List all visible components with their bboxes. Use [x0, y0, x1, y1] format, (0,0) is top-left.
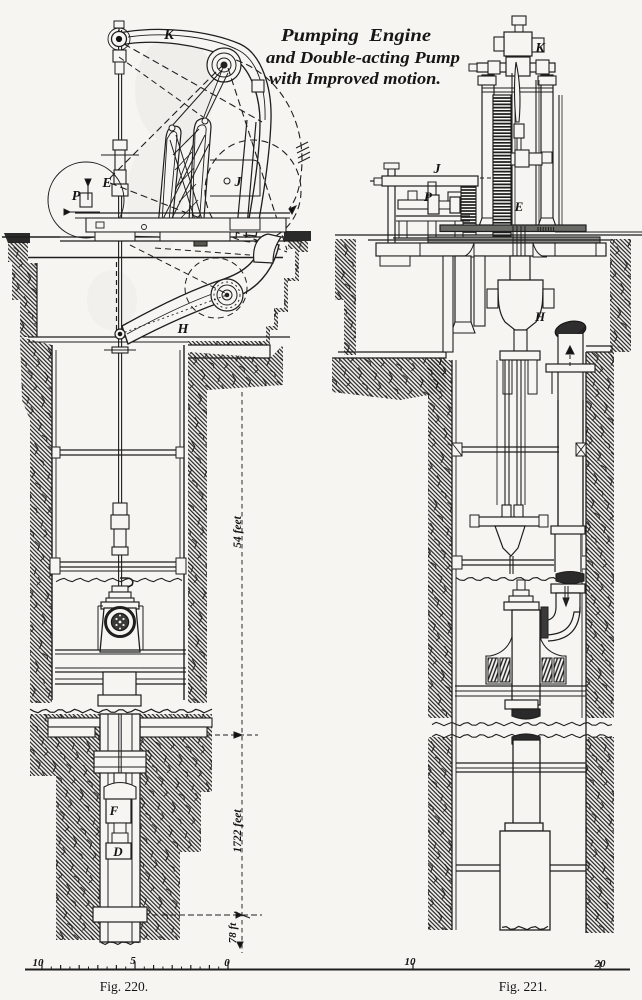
- svg-text:J: J: [433, 162, 442, 177]
- svg-text:P: P: [72, 189, 81, 204]
- svg-text:F: F: [109, 803, 119, 818]
- svg-text:0: 0: [224, 957, 230, 969]
- svg-text:78 ft: 78 ft: [227, 922, 239, 943]
- svg-text:D: D: [112, 844, 123, 859]
- svg-text:H: H: [177, 322, 190, 337]
- svg-text:K: K: [163, 27, 175, 43]
- svg-text:with Improved motion.: with Improved motion.: [269, 69, 441, 88]
- svg-text:5: 5: [130, 955, 136, 967]
- svg-text:E: E: [514, 199, 524, 214]
- svg-text:1722 feet: 1722 feet: [232, 809, 244, 853]
- svg-text:54 feet: 54 feet: [232, 515, 244, 547]
- svg-text:Pumping Engine: Pumping Engine: [280, 25, 431, 45]
- svg-text:10: 10: [405, 956, 417, 968]
- svg-text:P: P: [424, 189, 433, 204]
- svg-text:and Double-acting Pump: and Double-acting Pump: [266, 48, 460, 67]
- svg-text:Fig. 220.: Fig. 220.: [100, 979, 148, 994]
- svg-text:J: J: [234, 175, 243, 190]
- svg-text:H: H: [534, 309, 546, 324]
- svg-text:20: 20: [594, 958, 607, 970]
- svg-text:Fig. 221.: Fig. 221.: [499, 979, 547, 994]
- svg-text:10: 10: [33, 957, 45, 969]
- svg-text:K: K: [534, 41, 546, 56]
- svg-text:E: E: [101, 176, 111, 191]
